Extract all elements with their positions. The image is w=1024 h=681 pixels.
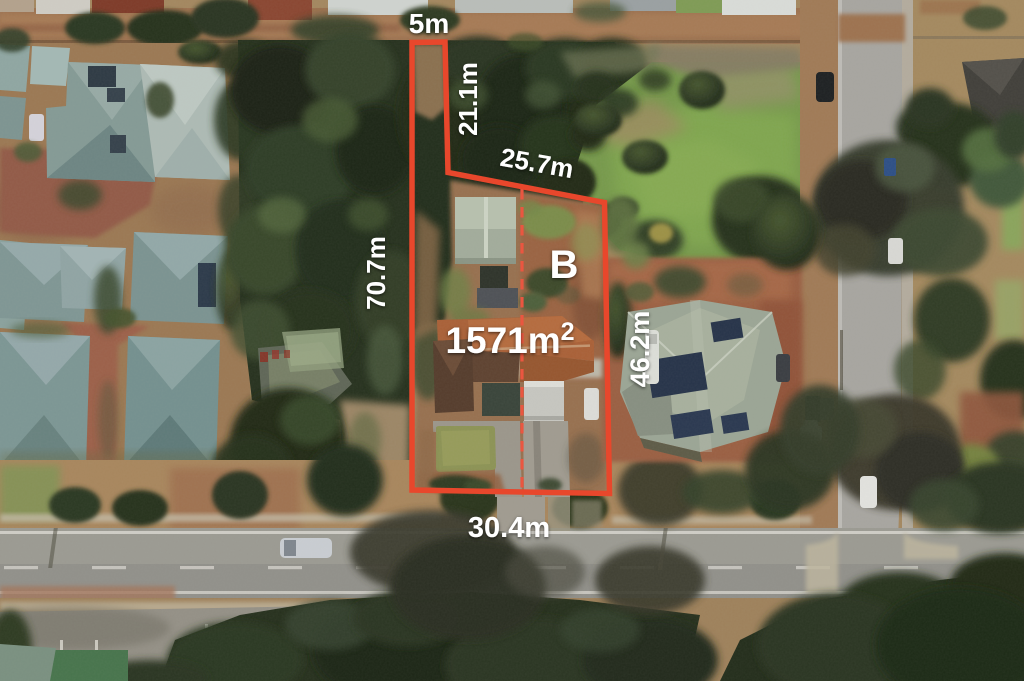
- svg-text:46.2m: 46.2m: [625, 311, 655, 388]
- svg-text:5m: 5m: [409, 8, 449, 39]
- svg-text:70.7m: 70.7m: [361, 236, 391, 310]
- svg-text:30.4m: 30.4m: [468, 512, 550, 544]
- svg-text:1571m2: 1571m2: [445, 318, 574, 361]
- svg-text:21.1m: 21.1m: [453, 62, 483, 136]
- svg-text:B: B: [550, 243, 579, 287]
